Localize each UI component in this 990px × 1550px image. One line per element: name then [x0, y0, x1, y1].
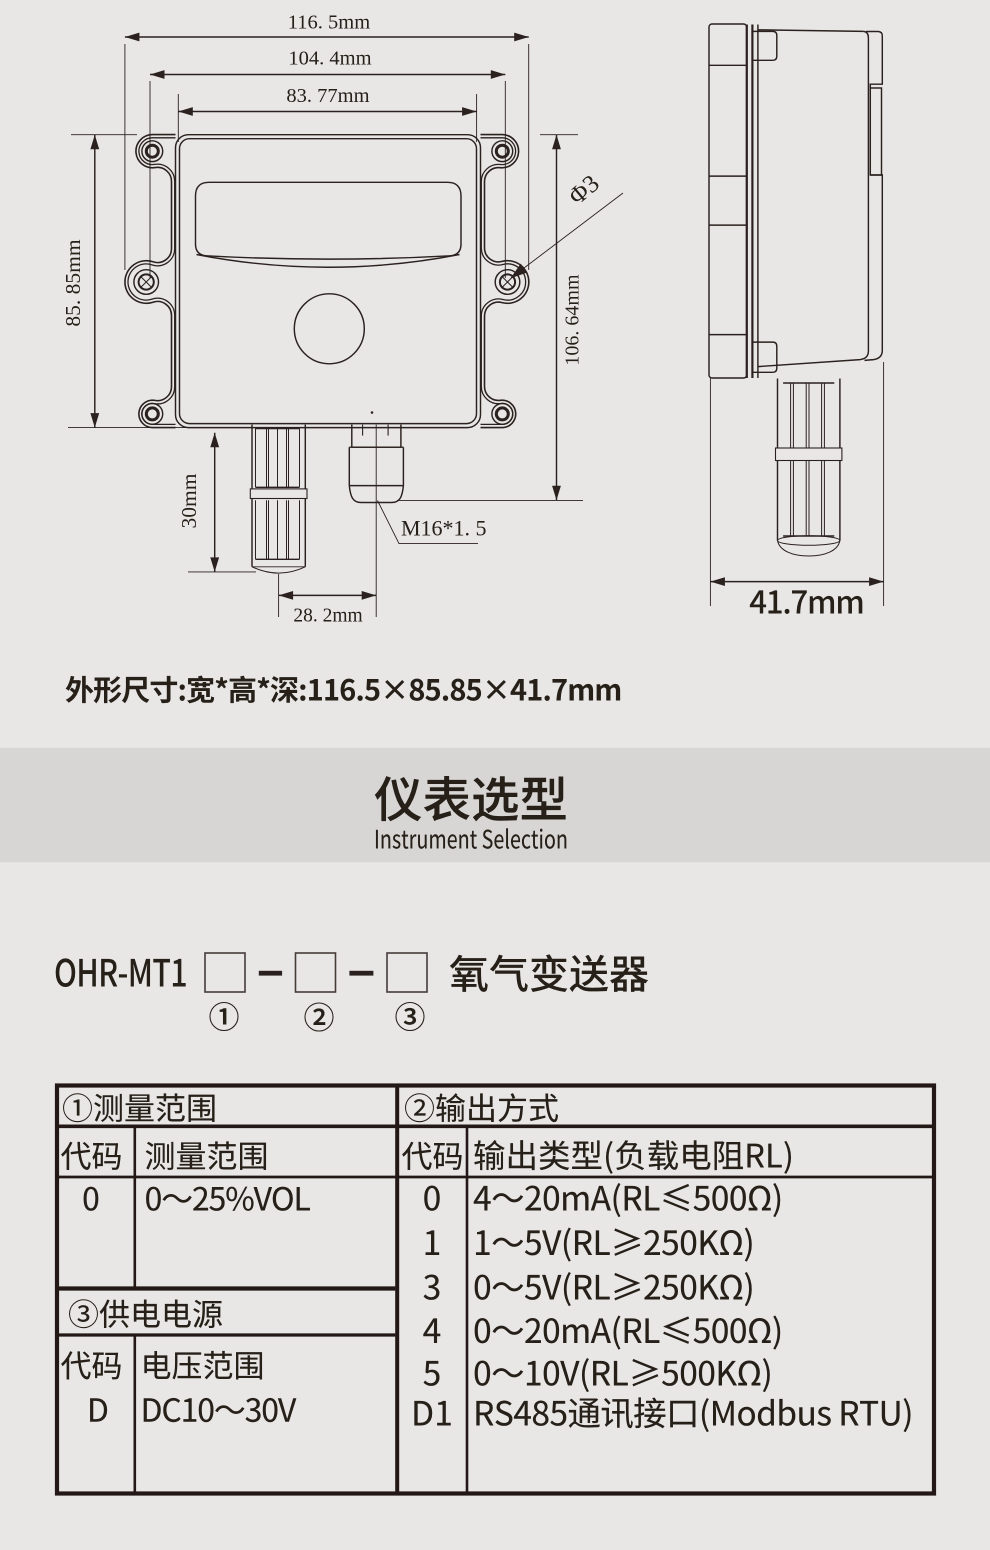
svg-text:85. 85mm: 85. 85mm	[61, 239, 85, 326]
svg-text:28. 2mm: 28. 2mm	[293, 606, 362, 627]
svg-text:30mm: 30mm	[177, 473, 201, 528]
svg-text:106. 64mm: 106. 64mm	[562, 274, 584, 366]
svg-text:M16*1. 5: M16*1. 5	[401, 516, 487, 541]
svg-text:104. 4mm: 104. 4mm	[288, 48, 371, 70]
svg-text:116. 5mm: 116. 5mm	[288, 12, 370, 34]
svg-text:83. 77mm: 83. 77mm	[286, 85, 369, 107]
